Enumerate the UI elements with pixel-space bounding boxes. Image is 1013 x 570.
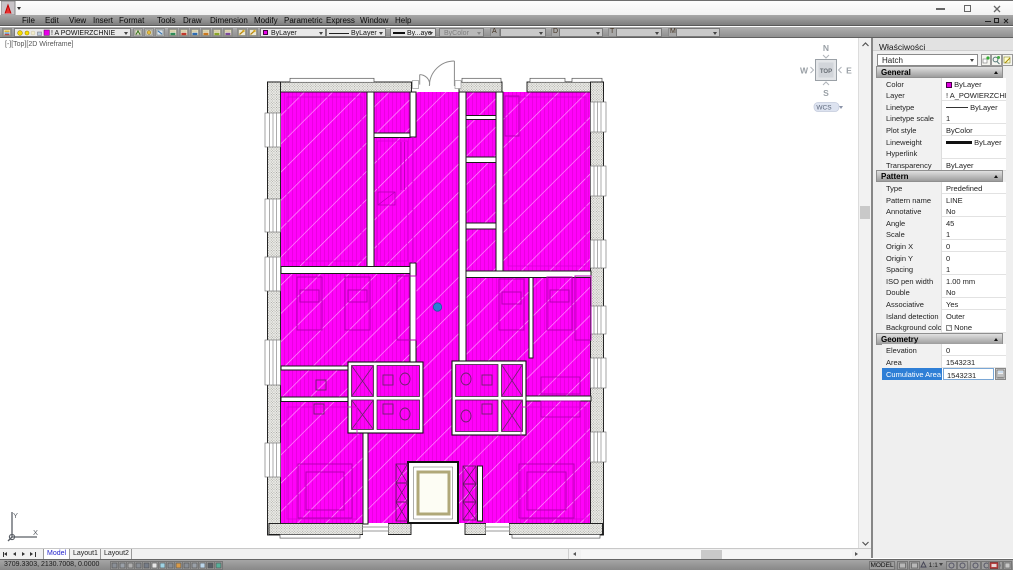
svg-text:Y: Y: [13, 511, 18, 520]
svg-text:TOP: TOP: [820, 69, 832, 75]
svg-text:N: N: [823, 43, 829, 53]
svg-text:E: E: [846, 66, 852, 76]
svg-text:W: W: [800, 66, 809, 76]
svg-text:S: S: [823, 88, 829, 98]
svg-text:X: X: [33, 528, 38, 537]
svg-text:WCS: WCS: [816, 105, 832, 112]
